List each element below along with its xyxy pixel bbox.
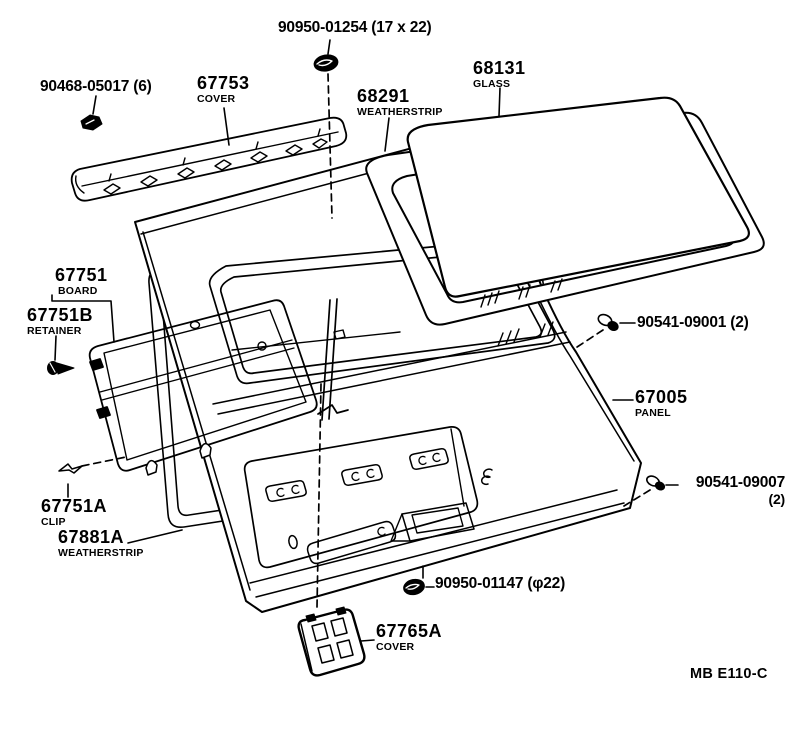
part-label-grommet-top: 90950-01254 (17 x 22) [278, 20, 432, 36]
part-name: RETAINER [27, 326, 93, 337]
part-label-panel: 67005 PANEL [635, 388, 688, 419]
part-label-grommet-right-lower: 90541-09007 (2) [680, 475, 785, 506]
part-label-cover-lower: 67765A COVER [376, 622, 442, 653]
figure-code: MB E110-C [690, 666, 768, 682]
part-label-grommet-right-upper: 90541-09001 (2) [637, 315, 749, 331]
part-name: WEATHERSTRIP [58, 548, 144, 559]
part-label-board-retainer: 67751B RETAINER [27, 306, 93, 337]
part-number: 90541-09001 (2) [637, 315, 749, 331]
part-qty: (2) [680, 492, 785, 506]
board-clip-icon [59, 464, 82, 473]
part-label-door-weatherstrip: 67881A WEATHERSTRIP [58, 528, 144, 559]
part-number: 90468-05017 (6) [40, 79, 152, 95]
retainer-icon [48, 362, 75, 375]
part-name: WEATHERSTRIP [357, 107, 443, 118]
part-number: 67753 [197, 74, 250, 92]
part-number: 90541-09007 [680, 475, 785, 491]
part-number: 67881A [58, 528, 144, 546]
part-label-cover: 67753 COVER [197, 74, 250, 105]
part-name: BOARD [55, 286, 108, 297]
parts-diagram-page: 90950-01254 (17 x 22) 90468-05017 (6) 67… [0, 0, 800, 746]
lower-cover-drawing [299, 607, 365, 675]
part-label-glass-weatherstrip: 68291 WEATHERSTRIP [357, 87, 443, 118]
part-number: 68291 [357, 87, 443, 105]
part-label-glass: 68131 GLASS [473, 59, 526, 90]
part-number: 67751A [41, 497, 107, 515]
part-number: 67765A [376, 622, 442, 640]
part-label-board: 67751 BOARD [55, 266, 108, 297]
grommet-right-upper-icon [597, 313, 620, 332]
part-number: 68131 [473, 59, 526, 77]
part-number: 67751 [55, 266, 108, 284]
part-name: COVER [376, 642, 442, 653]
part-number: 67005 [635, 388, 688, 406]
grommet-top-icon [313, 54, 338, 73]
part-number: 67751B [27, 306, 93, 324]
grommet-right-lower-icon [645, 474, 665, 491]
part-number: 90950-01254 (17 x 22) [278, 20, 432, 36]
part-name: COVER [197, 94, 250, 105]
part-label-board-clip: 67751A CLIP [41, 497, 107, 528]
grommet-bottom-icon [403, 578, 425, 596]
part-label-cover-clip: 90468-05017 (6) [40, 79, 152, 95]
part-name: GLASS [473, 79, 526, 90]
cover-clip-icon [81, 115, 102, 130]
part-name: CLIP [41, 517, 107, 528]
part-label-grommet-bottom: 90950-01147 (φ22) [435, 576, 565, 592]
part-name: PANEL [635, 408, 688, 419]
part-number: 90950-01147 (φ22) [435, 576, 565, 592]
